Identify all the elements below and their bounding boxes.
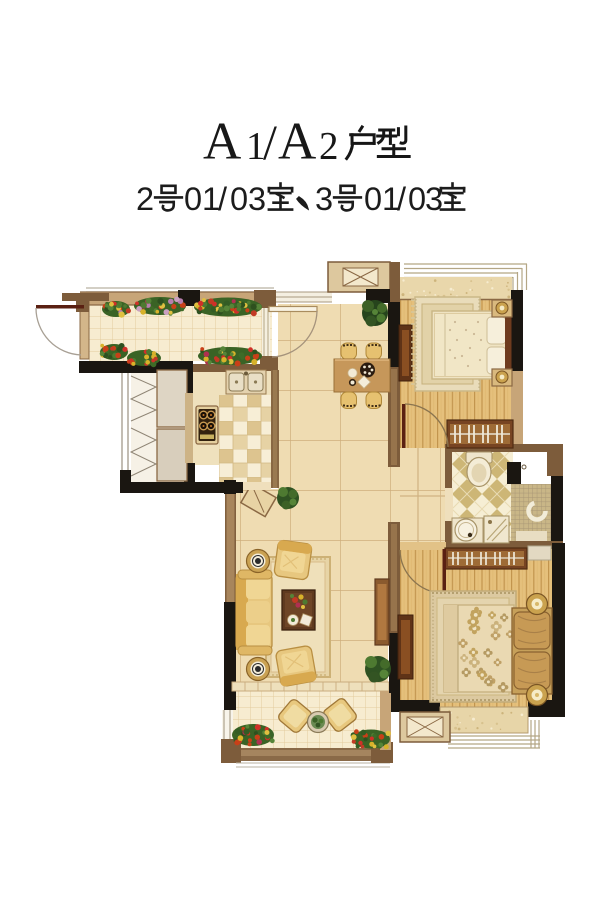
svg-text:2: 2: [319, 125, 339, 168]
svg-text:/: /: [263, 114, 277, 170]
svg-text:A: A: [203, 113, 241, 171]
svg-text:/: /: [218, 181, 228, 217]
svg-text:3: 3: [425, 181, 443, 217]
svg-text:3: 3: [248, 181, 266, 217]
svg-text:/: /: [397, 181, 407, 217]
svg-text:3: 3: [315, 181, 333, 217]
svg-text:0: 0: [408, 181, 426, 217]
svg-text:2: 2: [136, 181, 154, 217]
svg-text:0: 0: [364, 181, 382, 217]
svg-text:0: 0: [230, 181, 248, 217]
svg-text:0: 0: [184, 181, 202, 217]
svg-text:A: A: [278, 113, 316, 171]
